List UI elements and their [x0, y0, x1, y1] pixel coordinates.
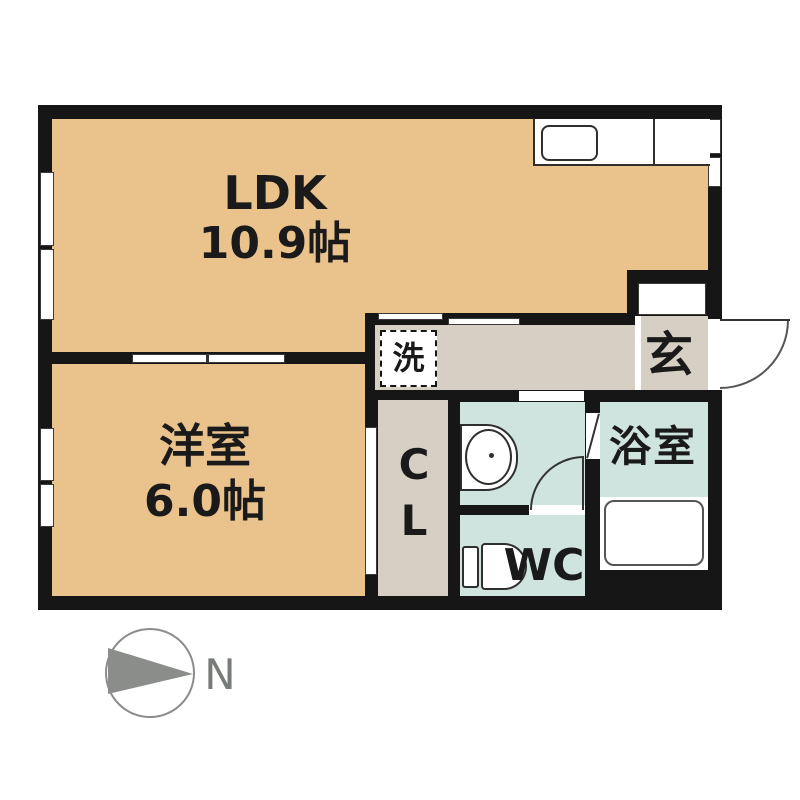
floor-plan: LDK 10.9帖 洋室 6.0帖 玄 洗 C L WC 浴室 N: [0, 0, 800, 800]
ldk-size-label: 10.9帖: [150, 218, 400, 270]
room-ldk-area-mid: [52, 270, 627, 313]
washroom-door-leaf: [582, 456, 584, 510]
kitchen-sink: [541, 125, 598, 161]
window-western-left-lower: [40, 484, 54, 527]
ldk-label: LDK: [160, 168, 390, 218]
closet-door: [365, 427, 377, 575]
window-ldk-left-upper: [40, 172, 54, 246]
closet-label-l: L: [391, 498, 437, 544]
window-western-left-upper: [40, 428, 54, 481]
kitchen-counter-divider: [653, 119, 655, 166]
western-size-label: 6.0帖: [95, 476, 315, 528]
toilet-tank: [462, 546, 479, 588]
window-ldk-left-lower: [40, 249, 54, 320]
wc-label: WC: [498, 541, 590, 591]
sliding-door-tick: [206, 355, 209, 362]
laundry-label: 洗: [380, 330, 437, 387]
sliding-door-hall-panel1: [378, 313, 443, 320]
washroom-entry-gap: [519, 391, 584, 401]
entrance-label: 玄: [640, 328, 698, 382]
entrance-door-leaf: [720, 319, 790, 321]
north-label: N: [200, 652, 240, 698]
shoe-cabinet: [638, 283, 706, 315]
closet-label-c: C: [391, 442, 437, 488]
room-ldk-area-left: [52, 313, 365, 352]
vanity-faucet-dot: [489, 453, 494, 458]
western-room-label: 洋室: [95, 420, 315, 472]
bathroom-label: 浴室: [600, 422, 706, 472]
north-arrow-icon: [100, 625, 210, 725]
entrance-door-arc: [720, 320, 789, 389]
sliding-door-hall-panel2: [448, 318, 520, 325]
bathtub: [604, 500, 704, 566]
